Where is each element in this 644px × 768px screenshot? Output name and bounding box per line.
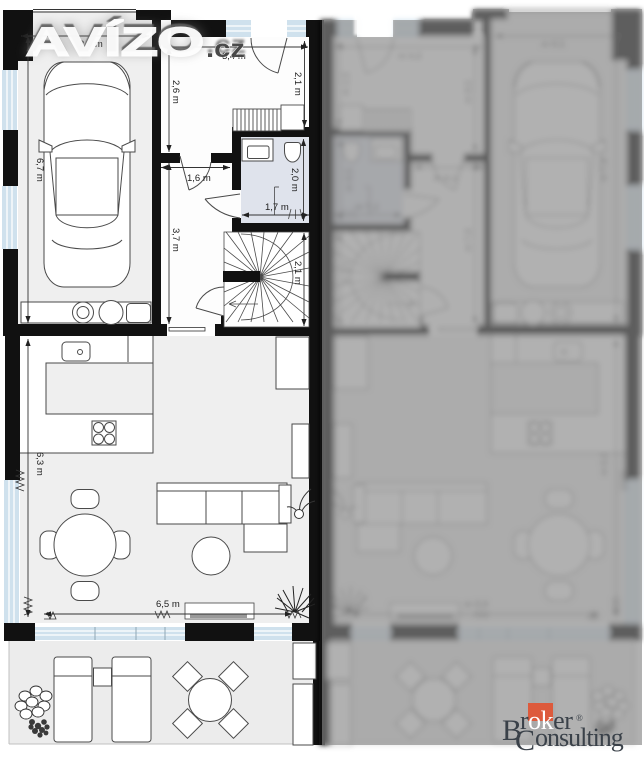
svg-text:onsulting: onsulting	[535, 723, 624, 752]
svg-text:AVÍZO: AVÍZO	[26, 20, 204, 65]
svg-text:®: ®	[576, 713, 583, 723]
svg-text:C: C	[515, 724, 535, 757]
svg-text:.cz: .cz	[206, 35, 245, 63]
